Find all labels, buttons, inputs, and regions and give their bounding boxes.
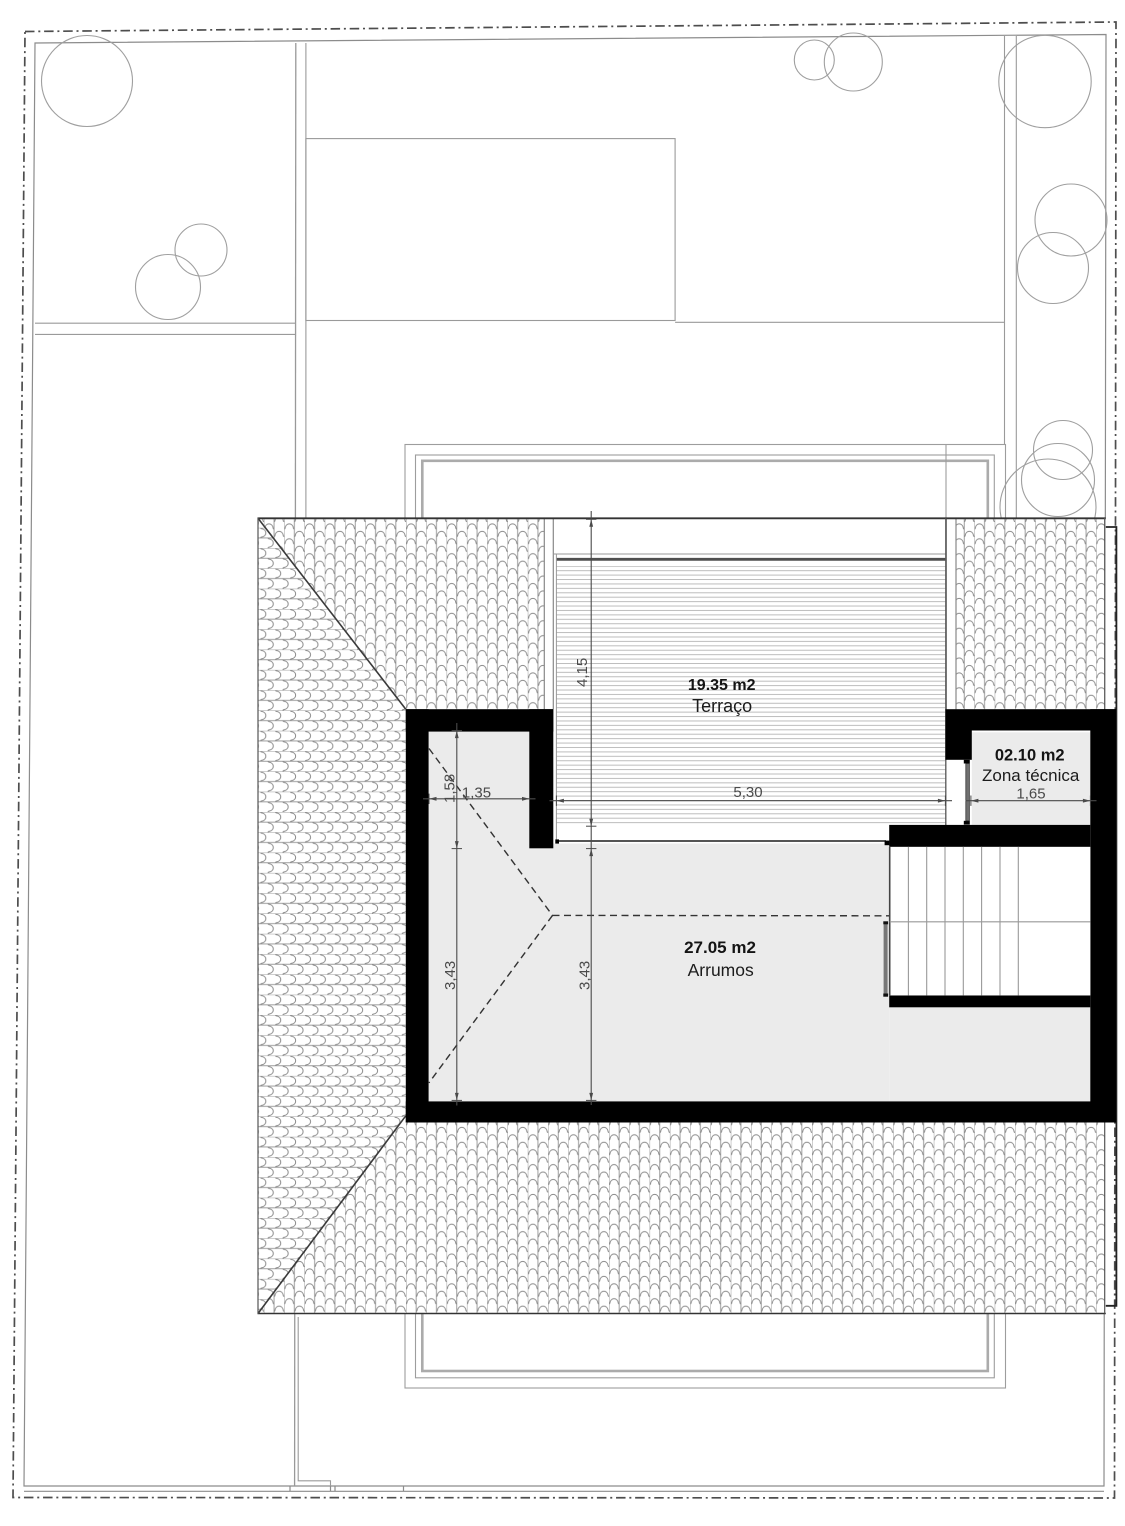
svg-text:Arrumos: Arrumos	[688, 960, 754, 980]
svg-text:1,65: 1,65	[1016, 785, 1045, 802]
svg-text:3,43: 3,43	[577, 961, 594, 990]
svg-text:Zona técnica: Zona técnica	[982, 766, 1080, 785]
svg-text:02.10 m2: 02.10 m2	[995, 746, 1065, 764]
svg-text:19.35 m2: 19.35 m2	[688, 677, 756, 694]
svg-text:5,30: 5,30	[733, 784, 762, 801]
svg-text:1,35: 1,35	[462, 785, 491, 802]
svg-text:27.05 m2: 27.05 m2	[684, 938, 756, 957]
svg-text:3,43: 3,43	[442, 961, 459, 990]
svg-text:Terraço: Terraço	[692, 696, 752, 716]
svg-text:4,15: 4,15	[574, 658, 591, 687]
